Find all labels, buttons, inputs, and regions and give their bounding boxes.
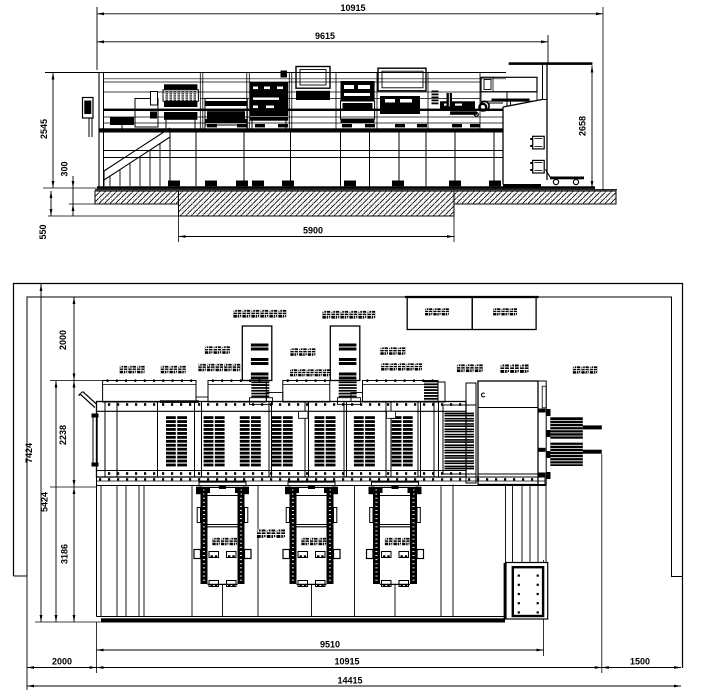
svg-text:10915: 10915 (334, 657, 359, 667)
svg-text:5900: 5900 (303, 226, 323, 236)
svg-text:2545: 2545 (39, 119, 49, 139)
svg-text:2000: 2000 (58, 330, 68, 350)
svg-text:7424: 7424 (24, 443, 34, 463)
svg-text:2658: 2658 (578, 116, 588, 136)
svg-text:550: 550 (38, 224, 48, 239)
svg-text:2000: 2000 (52, 657, 72, 667)
svg-text:10915: 10915 (340, 3, 365, 13)
svg-text:14415: 14415 (337, 676, 362, 686)
svg-text:9615: 9615 (315, 31, 335, 41)
svg-text:300: 300 (60, 161, 70, 176)
svg-text:1500: 1500 (630, 657, 650, 667)
svg-text:2238: 2238 (58, 425, 68, 445)
svg-text:3186: 3186 (60, 544, 70, 564)
svg-text:5424: 5424 (40, 492, 50, 512)
svg-text:9510: 9510 (320, 640, 340, 650)
